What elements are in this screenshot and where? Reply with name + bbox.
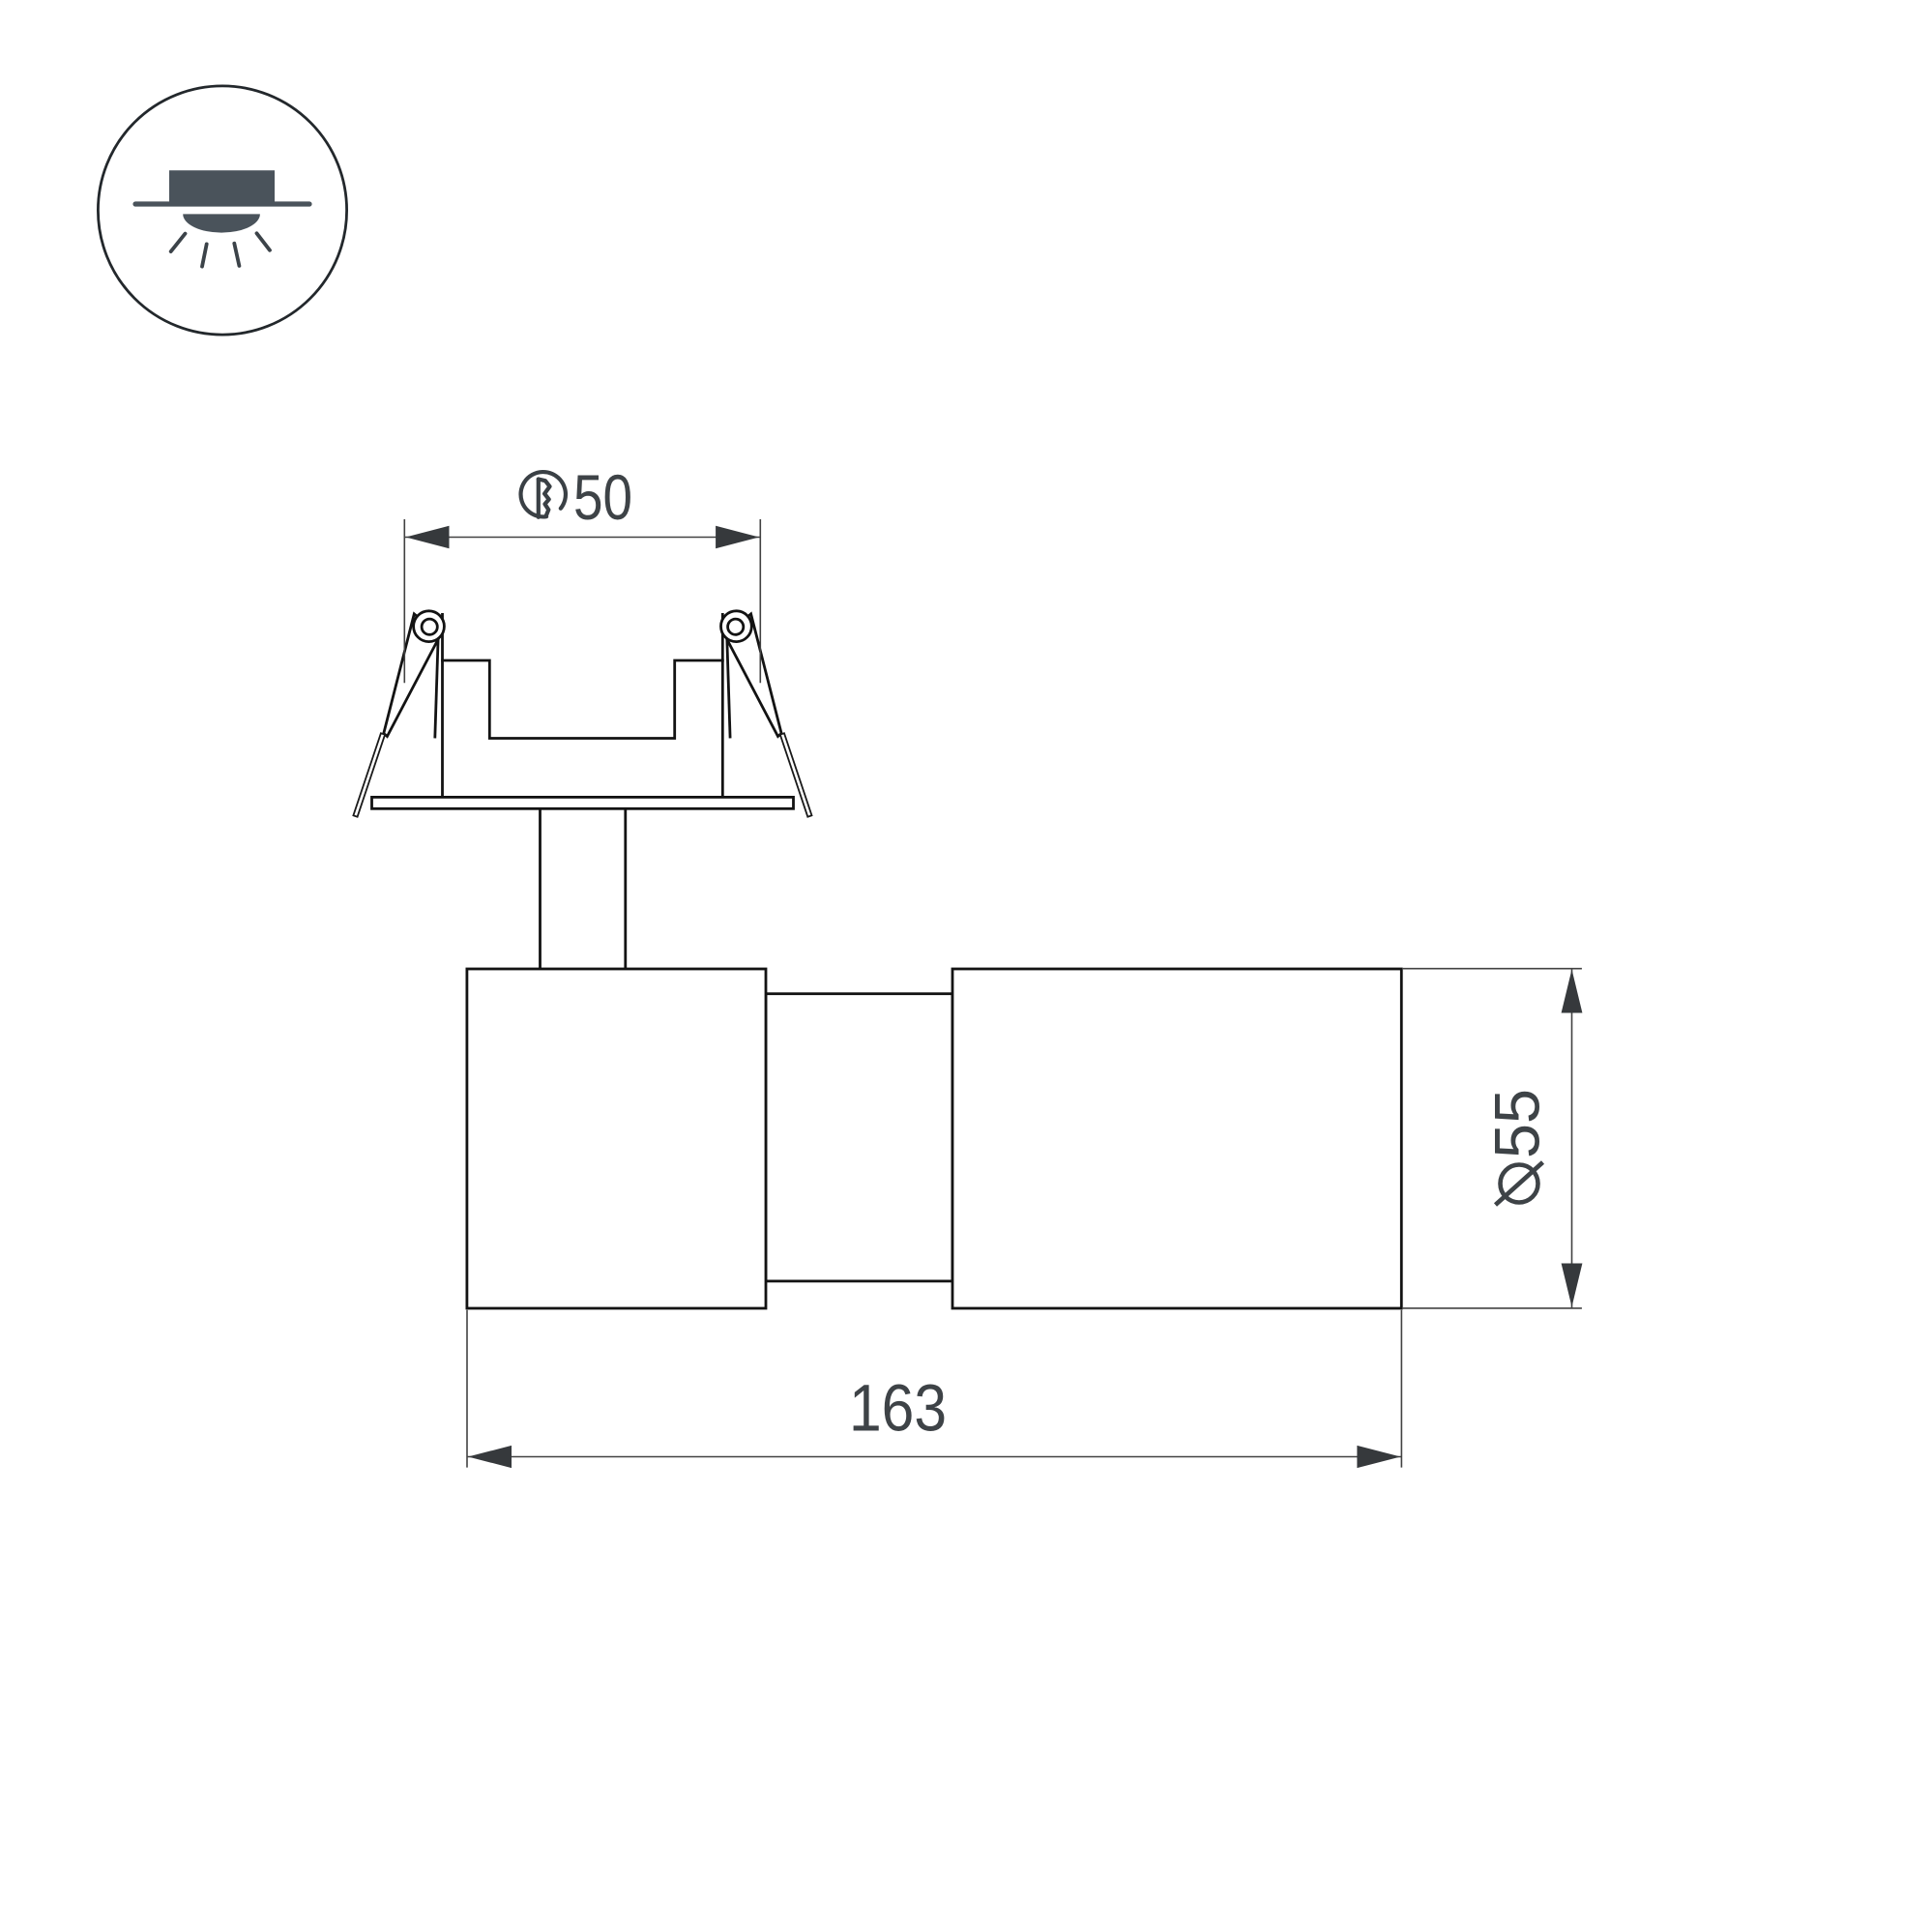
svg-text:163: 163 [849,1370,947,1445]
svg-text:55: 55 [1481,1089,1553,1158]
svg-text:50: 50 [573,461,632,533]
